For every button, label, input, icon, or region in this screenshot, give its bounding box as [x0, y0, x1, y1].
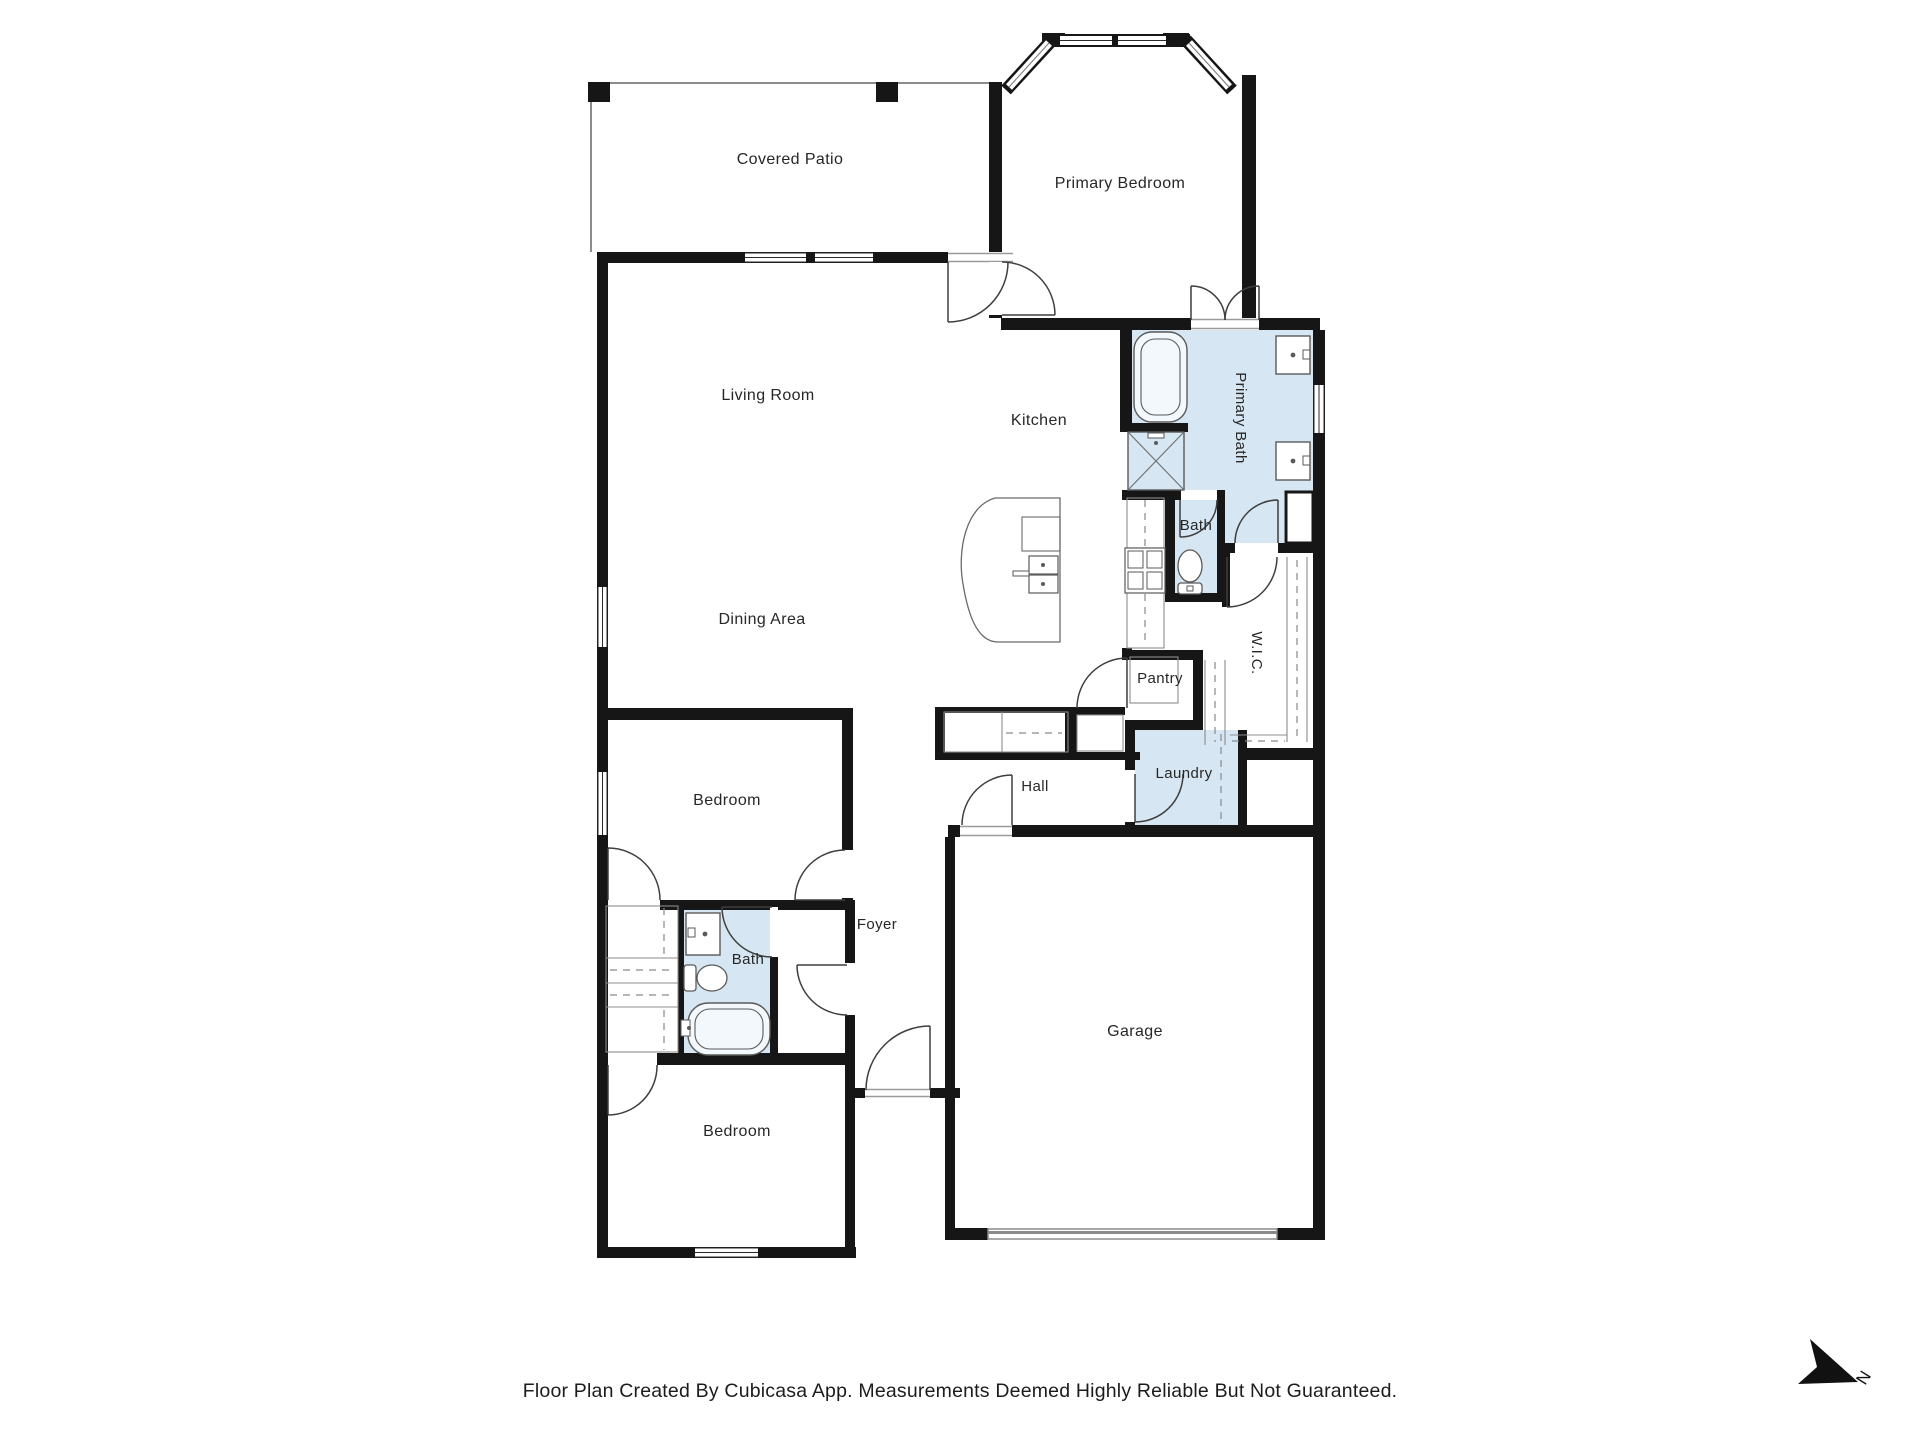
- floor-plan-page: Covered PatioPrimary BedroomLiving RoomK…: [0, 0, 1920, 1440]
- room-label-pantry: Pantry: [1137, 670, 1183, 687]
- bathtub-icon: [1134, 332, 1187, 422]
- room-label-hall: Hall: [1021, 778, 1048, 795]
- footer-disclaimer: Floor Plan Created By Cubicasa App. Meas…: [0, 1380, 1920, 1403]
- window-layer: [598, 36, 1324, 1257]
- wall-layer: [588, 33, 1325, 1258]
- kitchen-counter: [1125, 498, 1165, 648]
- sink-icon: [1276, 336, 1310, 374]
- room-label-living-room: Living Room: [721, 387, 814, 404]
- hall-cabinet: [944, 712, 1123, 752]
- room-label-laundry: Laundry: [1155, 765, 1212, 782]
- room-label-primary-bath: Primary Bath: [1232, 372, 1249, 464]
- room-label-bath-upper: Bath: [1180, 517, 1212, 534]
- room-label-bedroom-1: Bedroom: [693, 792, 761, 809]
- room-label-foyer: Foyer: [857, 916, 897, 933]
- sink-icon: [1276, 442, 1310, 480]
- bathtub-icon: [681, 1003, 770, 1055]
- label-layer: Covered PatioPrimary BedroomLiving RoomK…: [693, 151, 1265, 1140]
- bedroom-closets: [606, 906, 678, 1052]
- toilet-icon: [1178, 550, 1202, 594]
- range-icon: [1125, 548, 1165, 593]
- room-label-covered-patio: Covered Patio: [737, 151, 844, 168]
- room-label-primary-bedroom: Primary Bedroom: [1055, 175, 1185, 192]
- linen-closet: [1286, 492, 1313, 543]
- room-label-kitchen: Kitchen: [1011, 412, 1067, 429]
- kitchen-island: [961, 498, 1060, 642]
- north-arrow-icon: [1798, 1339, 1858, 1384]
- room-label-bedroom-2: Bedroom: [703, 1123, 771, 1140]
- room-label-wic: W.I.C.: [1248, 631, 1265, 674]
- room-label-garage: Garage: [1107, 1023, 1163, 1040]
- room-label-bath-lower: Bath: [732, 951, 764, 968]
- room-label-dining-area: Dining Area: [718, 611, 805, 628]
- sink-icon: [686, 913, 720, 955]
- floor-plan-svg: Covered PatioPrimary BedroomLiving RoomK…: [0, 0, 1920, 1440]
- toilet-icon: [684, 965, 727, 991]
